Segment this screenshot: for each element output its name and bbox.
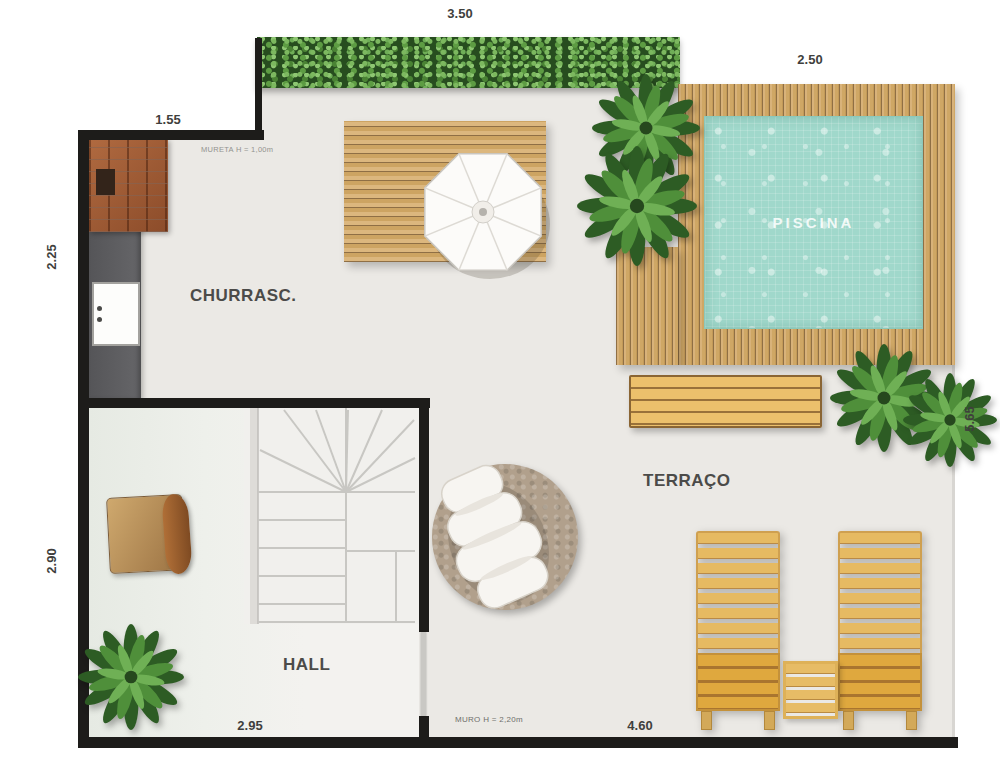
- dimension-left-lower: 2.90: [37, 531, 67, 591]
- lounger-backrest: [838, 531, 922, 653]
- bbq-grill: [89, 139, 168, 232]
- lounge-chair: [420, 450, 590, 625]
- lounger-legs: [838, 711, 922, 731]
- room-label-hall: HALL: [283, 655, 330, 675]
- side-table: [783, 661, 838, 719]
- wall-hall-right: [419, 398, 429, 632]
- staircase: [244, 406, 419, 624]
- dimension-bottom-terrace: 4.60: [600, 718, 680, 733]
- lounger-seat: [696, 653, 780, 711]
- hall-terrace-door: [421, 632, 426, 716]
- umbrella-icon: [408, 140, 558, 290]
- floor-plan-canvas: PISCINA: [0, 0, 1000, 781]
- room-label-churrasco: CHURRASC.: [190, 286, 297, 306]
- entry-door: [92, 282, 140, 346]
- wall-bottom: [78, 737, 958, 748]
- note-mureta: MURETA H = 1,00m: [201, 145, 273, 154]
- dimension-top-pool: 2.50: [770, 52, 850, 67]
- wooden-bench: [629, 375, 822, 428]
- sun-lounger: [696, 531, 780, 731]
- wall-hedge-left: [255, 38, 262, 138]
- plant-icon: [78, 624, 184, 730]
- door-handle-icon: [97, 306, 102, 311]
- dimension-top-hedge: 3.50: [420, 6, 500, 21]
- dimension-bottom-hall: 2.95: [210, 718, 290, 733]
- room-label-terraco: TERRAÇO: [643, 471, 731, 491]
- lounger-seat: [838, 653, 922, 711]
- hall-desk: [104, 492, 196, 578]
- dimension-right: 5.65: [955, 389, 985, 449]
- wall-hall-right-stub: [419, 716, 429, 741]
- lounger-legs: [696, 711, 780, 731]
- swimming-pool: PISCINA: [704, 116, 923, 329]
- plant-icon: [577, 146, 697, 266]
- lounger-backrest: [696, 531, 780, 653]
- room-label-piscina: PISCINA: [773, 214, 855, 231]
- note-muro: MURO H = 2,20m: [455, 715, 523, 724]
- outside-area-top-left: [0, 0, 255, 130]
- dimension-left-upper: 2.25: [37, 227, 67, 287]
- wall-hall-top: [78, 398, 430, 408]
- wall-top-left: [78, 130, 264, 140]
- sun-lounger: [838, 531, 922, 731]
- dimension-entry: 1.55: [128, 112, 208, 127]
